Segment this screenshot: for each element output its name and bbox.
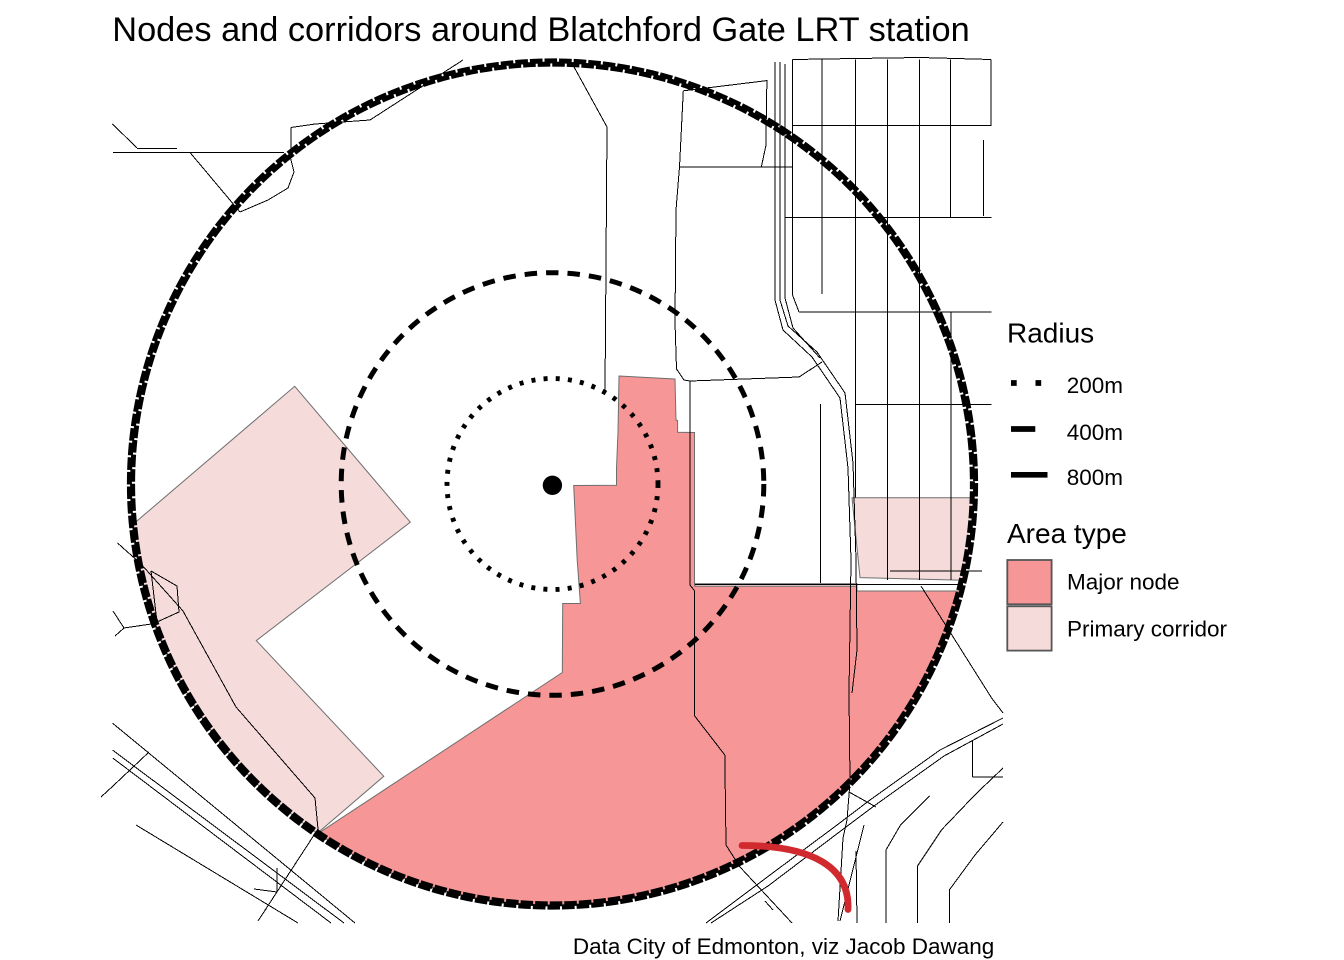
svg-text:400m: 400m [1067,420,1123,445]
svg-text:Primary corridor: Primary corridor [1067,616,1228,641]
svg-text:200m: 200m [1067,373,1123,398]
svg-text:Major node: Major node [1067,570,1180,595]
svg-text:800m: 800m [1067,465,1123,490]
svg-text:Nodes and corridors around Bla: Nodes and corridors around Blatchford Ga… [112,11,969,49]
svg-text:Radius: Radius [1007,318,1094,349]
svg-text:Area type: Area type [1007,518,1127,549]
svg-text:Data City of Edmonton, viz Jac: Data City of Edmonton, viz Jacob Dawang [573,934,994,959]
